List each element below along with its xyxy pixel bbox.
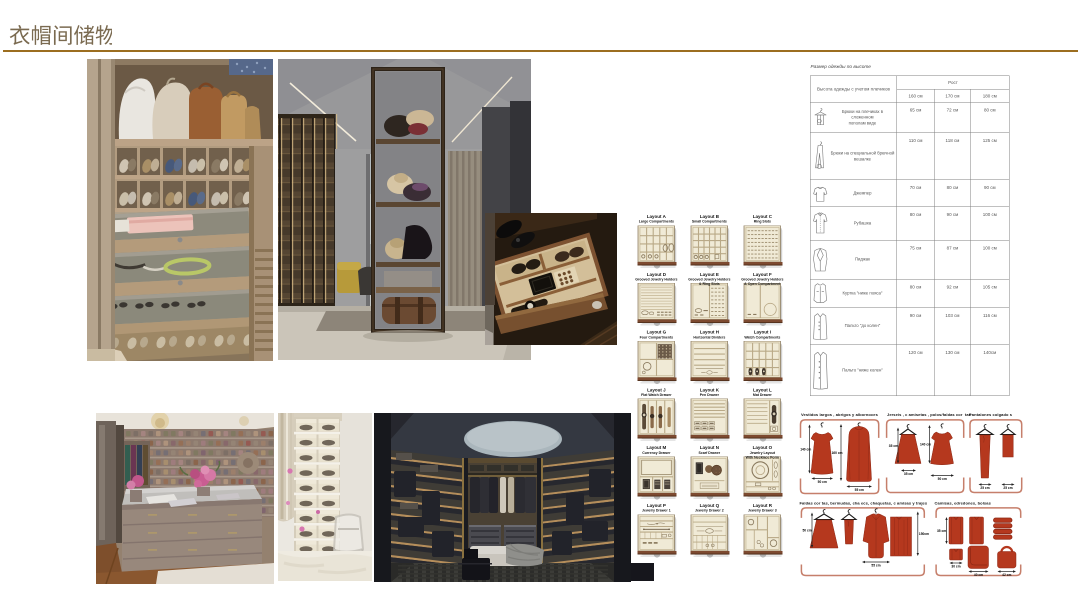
svg-text:150cm: 150cm: [919, 532, 929, 536]
svg-text:Pantalones colgado s: Pantalones colgado s: [969, 412, 1013, 417]
svg-text:30 cm: 30 cm: [951, 565, 960, 569]
svg-text:50 cm: 50 cm: [803, 529, 812, 533]
svg-text:35 cm: 35 cm: [889, 444, 898, 448]
svg-text:55 cm: 55 cm: [871, 564, 880, 568]
svg-text:25 cm: 25 cm: [1003, 486, 1012, 490]
svg-text:55 cm: 55 cm: [855, 488, 864, 492]
svg-text:25 cm: 25 cm: [980, 486, 989, 490]
svg-text:Vestidos largos , abrigos y al: Vestidos largos , abrigos y albornoces: [801, 412, 879, 417]
svg-text:40 cm: 40 cm: [974, 573, 983, 577]
svg-text:35 cm: 35 cm: [904, 472, 913, 476]
svg-text:Faldas cor tas, bermudas, cha: Faldas cor tas, bermudas, cha ecs, chaqu…: [800, 501, 928, 506]
svg-text:Jerseis , c amisetas , polos/f: Jerseis , c amisetas , polos/faldas cor …: [887, 412, 972, 417]
svg-text:50 cm: 50 cm: [818, 480, 827, 484]
svg-text:42 cm: 42 cm: [1002, 573, 1011, 577]
svg-text:140 cm: 140 cm: [800, 447, 811, 451]
svg-text:50 cm: 50 cm: [938, 477, 947, 481]
svg-text:Camisas, edredones, bolsas: Camisas, edredones, bolsas: [935, 501, 992, 506]
svg-text:160 cm: 160 cm: [832, 451, 843, 455]
svg-text:35 cm: 35 cm: [937, 529, 946, 533]
svg-text:140 cm: 140 cm: [920, 443, 931, 447]
